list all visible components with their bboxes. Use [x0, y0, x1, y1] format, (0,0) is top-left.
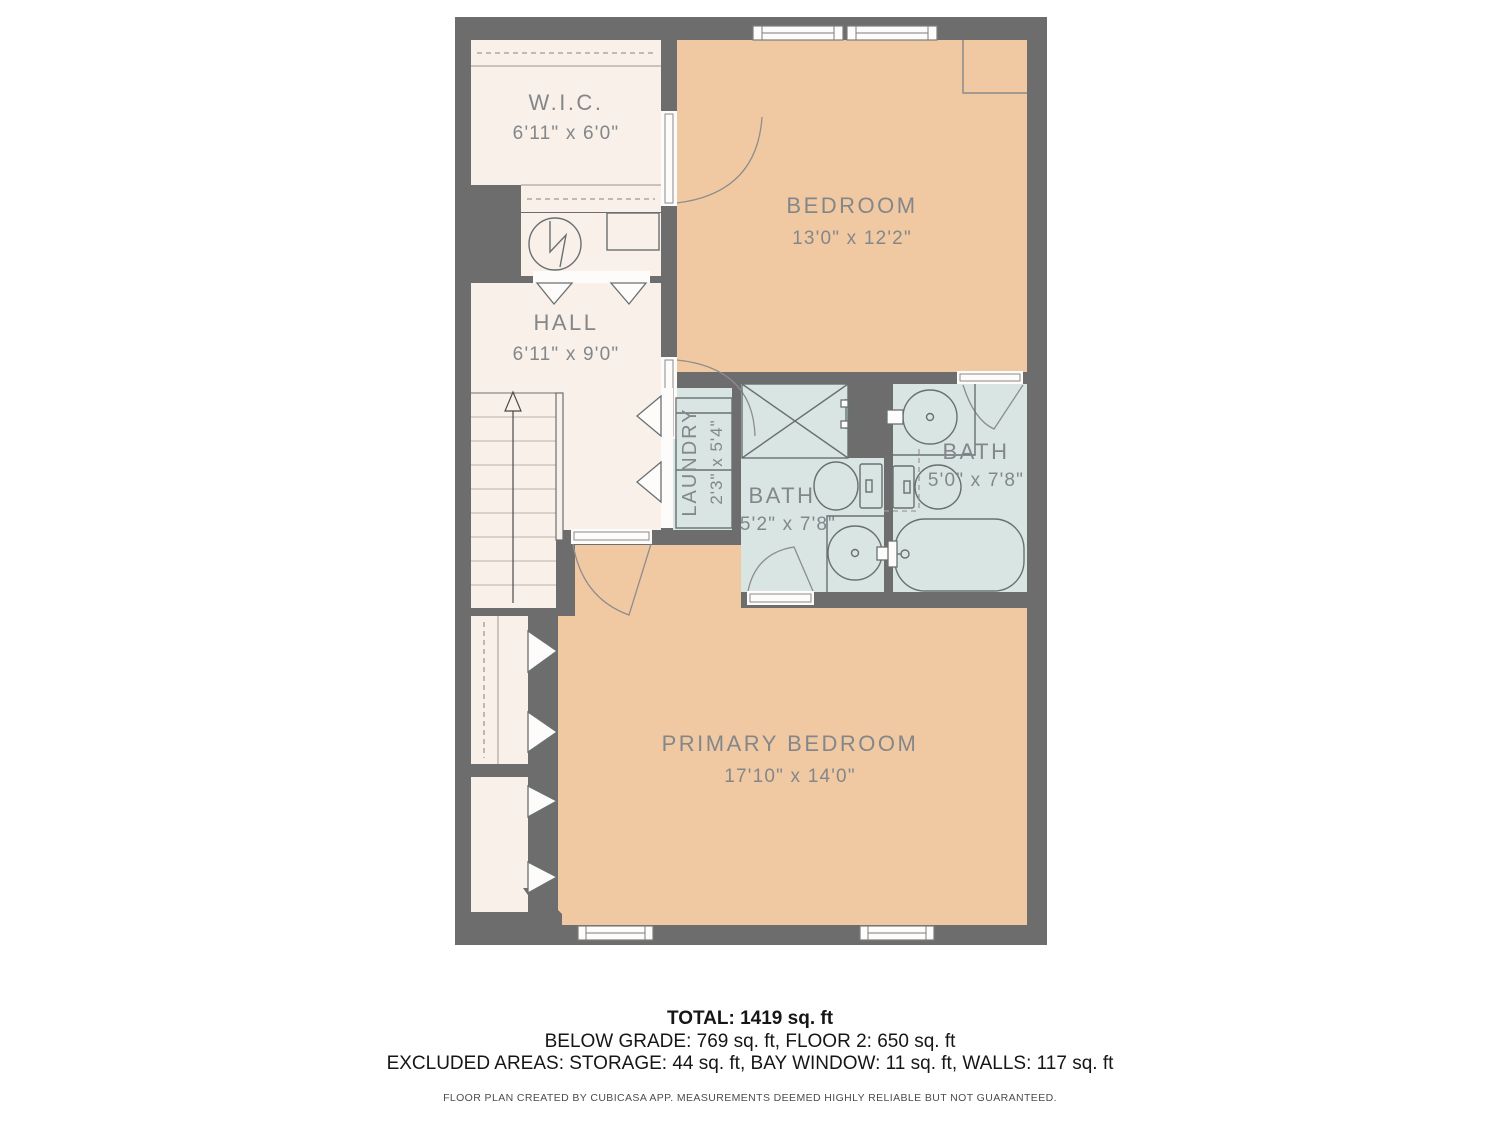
- bath-second-dims: 5'0" x 7'8": [928, 470, 1024, 491]
- primary-bedroom-dims: 17'10" x 14'0": [724, 766, 856, 787]
- disclaimer-text: FLOOR PLAN CREATED BY CUBICASA APP. MEAS…: [0, 1092, 1500, 1104]
- wic-label: W.I.C.: [529, 90, 604, 115]
- window: [860, 926, 934, 940]
- primary-bedroom-label: PRIMARY BEDROOM: [662, 731, 919, 756]
- window: [847, 26, 937, 40]
- bath-primary-label: BATH: [748, 483, 815, 508]
- window: [753, 26, 843, 40]
- total-area-text: TOTAL: 1419 sq. ft: [0, 1008, 1500, 1031]
- bath-second-label: BATH: [942, 439, 1009, 464]
- excluded-areas-text: EXCLUDED AREAS: STORAGE: 44 sq. ft, BAY …: [0, 1053, 1500, 1076]
- bath-wall-block: [848, 384, 884, 458]
- laundry-label: LAUNDRY: [679, 407, 701, 516]
- laundry-dims: 2'3" x 5'4": [707, 419, 726, 504]
- bedroom-dims: 13'0" x 12'2": [792, 228, 912, 249]
- hall-label: HALL: [533, 310, 598, 335]
- closet-1-floor: [471, 616, 528, 764]
- hall-dims: 6'11" x 9'0": [513, 344, 620, 365]
- window: [578, 926, 653, 940]
- wic-dims: 6'11" x 6'0": [513, 123, 620, 144]
- grade-areas-text: BELOW GRADE: 769 sq. ft, FLOOR 2: 650 sq…: [0, 1031, 1500, 1054]
- floor-plan-canvas: W.I.C. 6'11" x 6'0" BEDROOM 13'0" x 12'2…: [0, 0, 1500, 1125]
- bath-primary-dims: 5'2" x 7'8": [740, 514, 836, 535]
- closet-2-floor: [471, 777, 528, 912]
- bedroom-label: BEDROOM: [786, 193, 917, 218]
- stair-railing: [556, 393, 563, 540]
- summary-footer: TOTAL: 1419 sq. ft BELOW GRADE: 769 sq. …: [0, 1008, 1500, 1104]
